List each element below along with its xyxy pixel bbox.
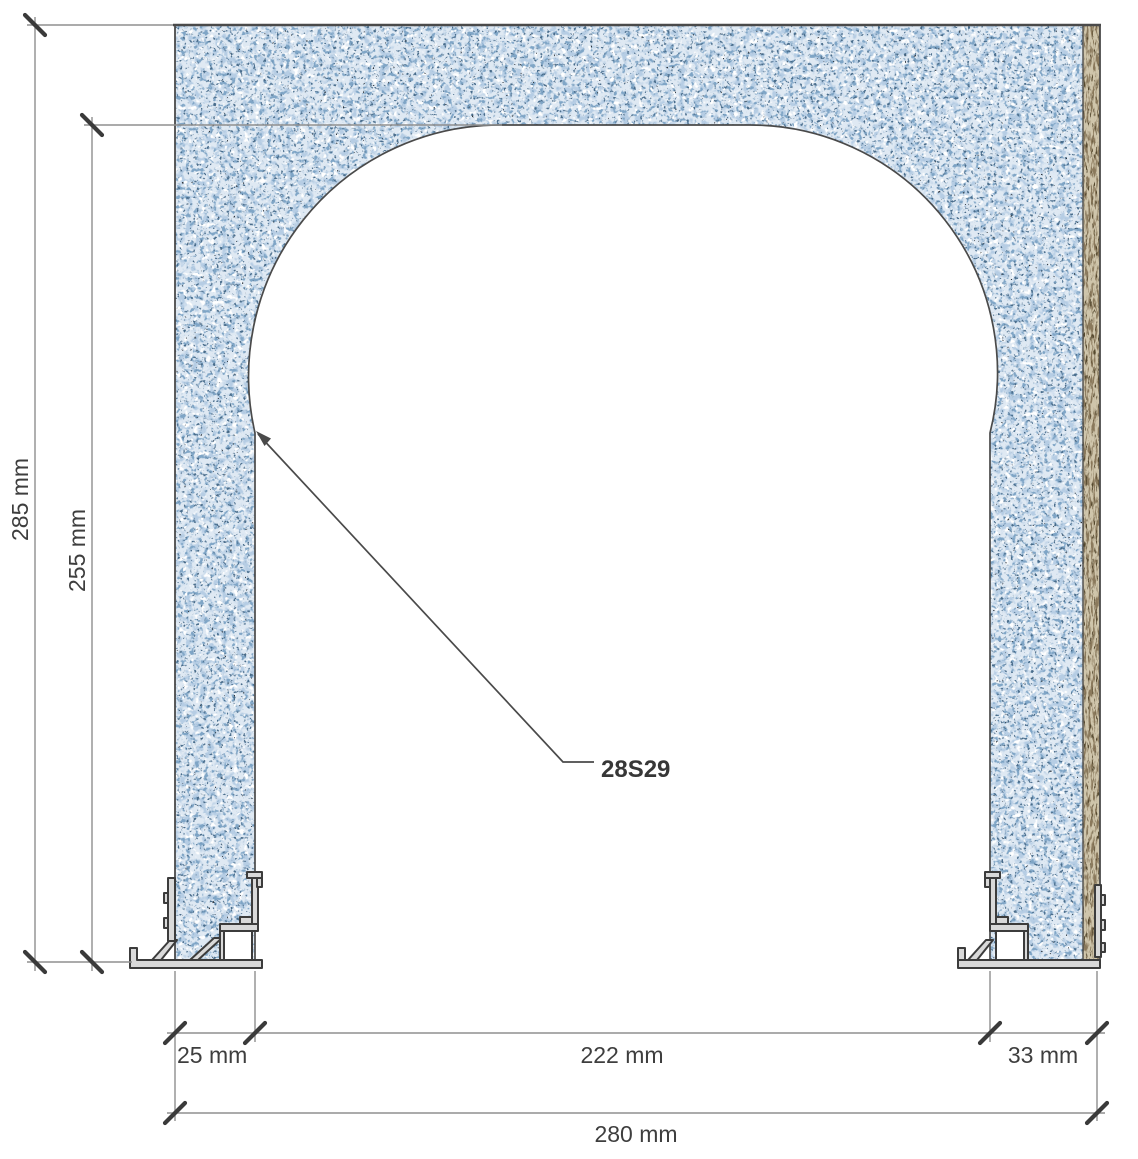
label-right-jamb-width: 33 mm [1008,1042,1078,1068]
right-profile-edge-bump-1 [1101,895,1105,905]
wall-texture [175,25,1083,962]
left-profile-hook-lip [257,878,262,887]
left-profile-notch [224,931,252,960]
left-profile-bump-1 [164,893,168,903]
arch-section-drawing: 285 mm 255 mm 25 mm 222 mm 33 mm 280 mm … [0,0,1138,1159]
right-profile-notch [996,931,1024,960]
label-opening-width: 222 mm [580,1042,663,1068]
left-profile-bump-2 [164,918,168,928]
right-profile-edge-bump-2 [1101,920,1105,930]
left-profile-outer-bar [168,878,175,941]
board-grain-dark [1083,25,1100,962]
wall-fleck-dark [175,25,1083,962]
leader-arrowhead-icon [256,431,271,446]
label-profile-callout: 28S29 [601,756,670,783]
dimension-labels: 285 mm 255 mm 25 mm 222 mm 33 mm 280 mm … [7,458,1078,1147]
right-profile-edge-bump-3 [1101,943,1105,952]
drawing-canvas: 285 mm 255 mm 25 mm 222 mm 33 mm 280 mm … [0,0,1138,1159]
leader-line [258,434,594,762]
callout-leader [256,431,594,762]
right-profile-step-lip [996,917,1008,924]
label-opening-height: 255 mm [64,509,90,592]
board-texture [1083,25,1100,962]
right-profile-hook-lip [985,878,990,887]
right-profile-upturn [958,948,965,960]
label-overall-height: 285 mm [7,458,33,541]
label-left-jamb-width: 25 mm [177,1042,247,1068]
label-overall-width: 280 mm [594,1121,677,1147]
left-profile-brace-outer [152,940,177,960]
left-profile-step-lip [240,917,252,924]
right-profile-foot [958,960,1100,968]
right-profile-step [990,924,1028,931]
left-profile-step [220,924,258,931]
